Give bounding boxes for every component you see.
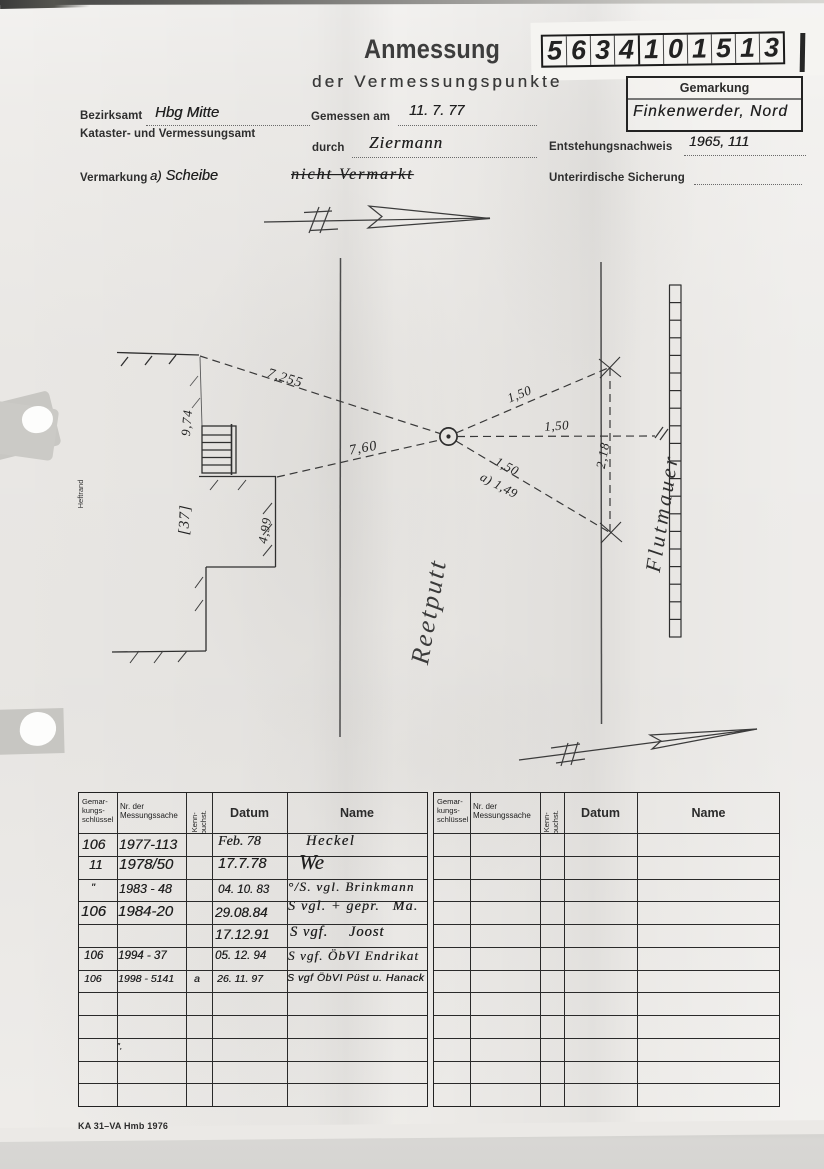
svg-text:7,60: 7,60 [348,439,379,459]
svg-text:Heftrand: Heftrand [76,480,85,509]
svg-text:7,255: 7,255 [265,366,304,391]
svg-text:[37]: [37] [176,504,194,535]
svg-text:2,18: 2,18 [593,441,612,470]
svg-text:4,99: 4,99 [255,516,274,545]
svg-text:Reetputt: Reetputt [405,556,452,667]
svg-text:9,74: 9,74 [178,409,195,437]
svg-text:1,50: 1,50 [544,417,570,434]
